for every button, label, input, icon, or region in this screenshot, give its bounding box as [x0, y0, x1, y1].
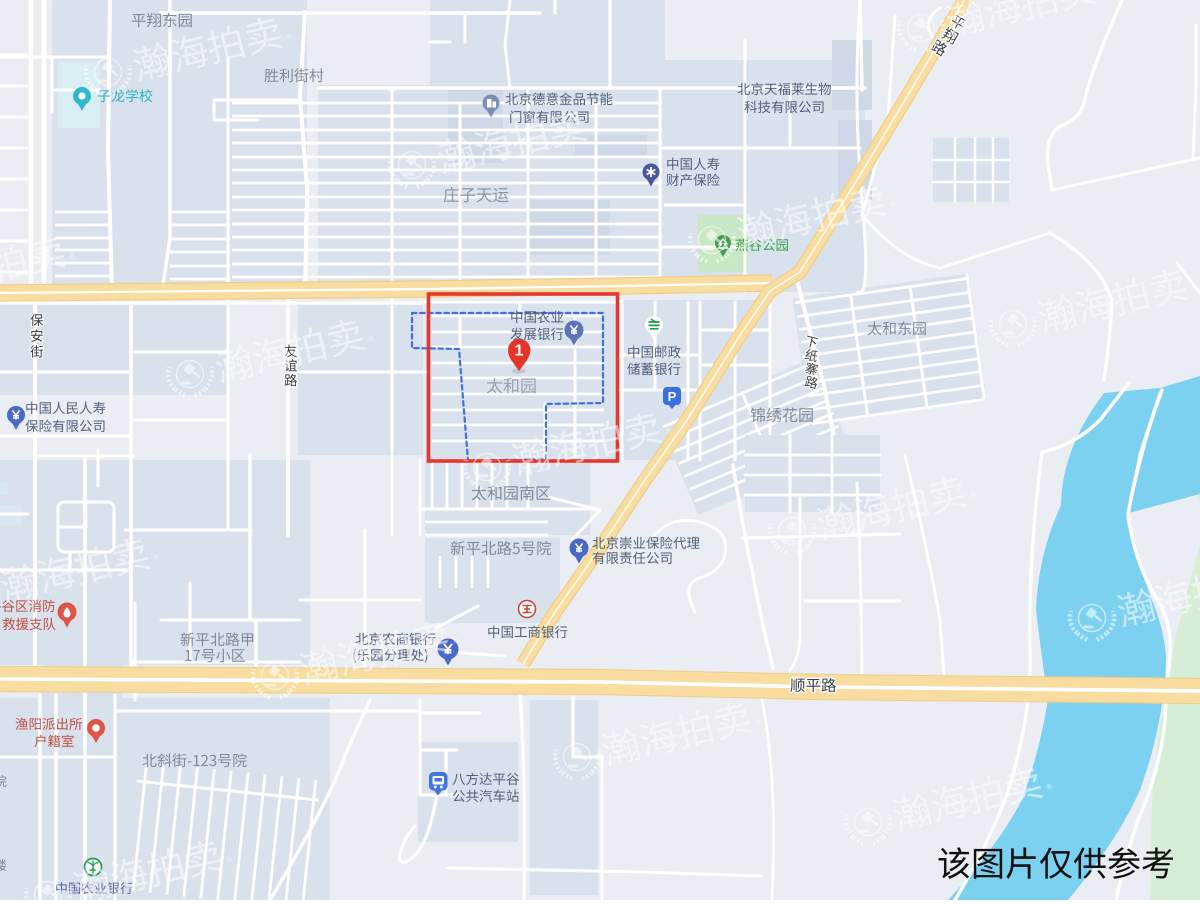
svg-text:P: P	[668, 389, 677, 404]
svg-text:1: 1	[515, 343, 524, 360]
